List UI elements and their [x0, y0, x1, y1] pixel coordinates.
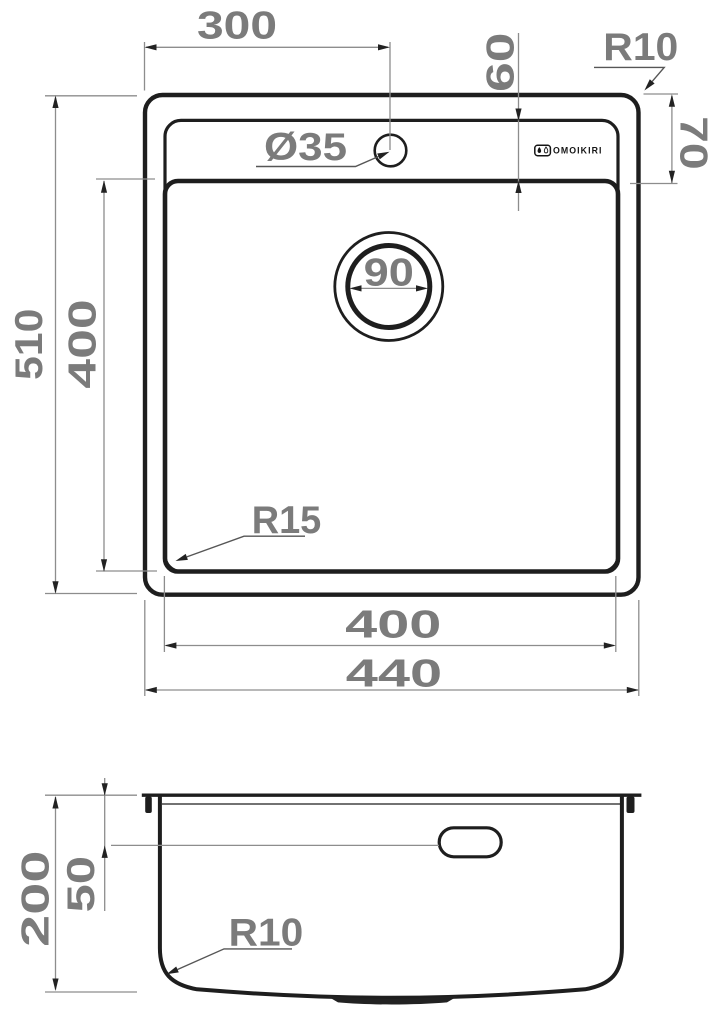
svg-text:Ø35: Ø35 — [264, 126, 347, 169]
svg-text:OMOIKIRI: OMOIKIRI — [553, 146, 603, 156]
svg-text:R10: R10 — [603, 26, 678, 69]
svg-text:510: 510 — [8, 309, 51, 380]
svg-text:60: 60 — [480, 32, 523, 91]
svg-text:200: 200 — [14, 850, 57, 947]
svg-text:50: 50 — [60, 856, 103, 913]
svg-text:300: 300 — [197, 4, 277, 47]
svg-text:400: 400 — [345, 604, 441, 647]
svg-text:70: 70 — [671, 116, 714, 170]
svg-text:R10: R10 — [229, 911, 304, 954]
svg-text:400: 400 — [62, 299, 105, 389]
svg-text:R15: R15 — [252, 499, 322, 542]
svg-text:440: 440 — [346, 653, 442, 696]
